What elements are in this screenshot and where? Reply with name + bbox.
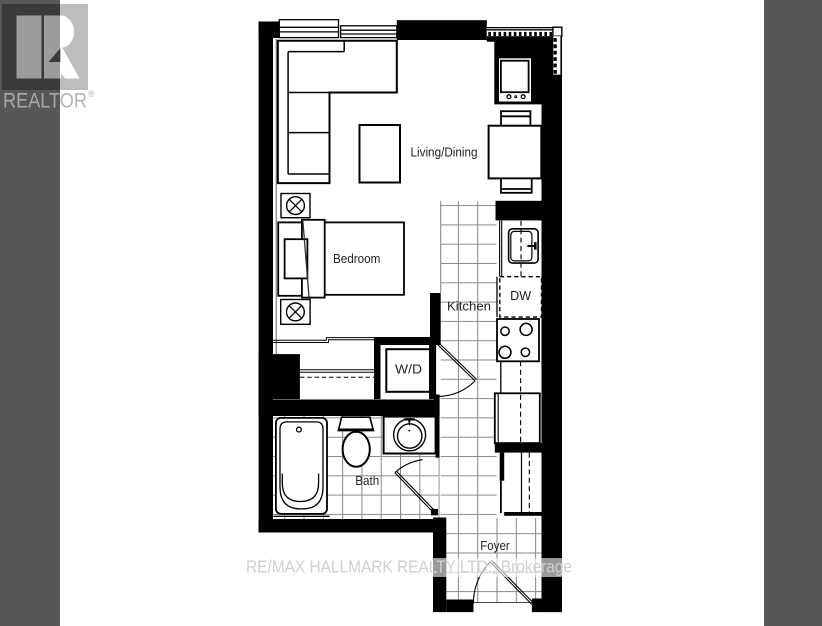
svg-text:Bedroom: Bedroom [333, 251, 381, 266]
svg-text:Living/Dining: Living/Dining [411, 144, 478, 159]
svg-text:RE/MAX HALLMARK REALTY LTD., B: RE/MAX HALLMARK REALTY LTD., Brokerage [246, 556, 572, 576]
svg-text:Foyer: Foyer [480, 538, 510, 553]
svg-text:®: ® [88, 89, 95, 99]
svg-text:DW: DW [510, 288, 532, 303]
svg-text:Bath: Bath [355, 473, 379, 488]
svg-text:W/D: W/D [395, 362, 422, 377]
svg-text:Kitchen: Kitchen [447, 299, 491, 314]
